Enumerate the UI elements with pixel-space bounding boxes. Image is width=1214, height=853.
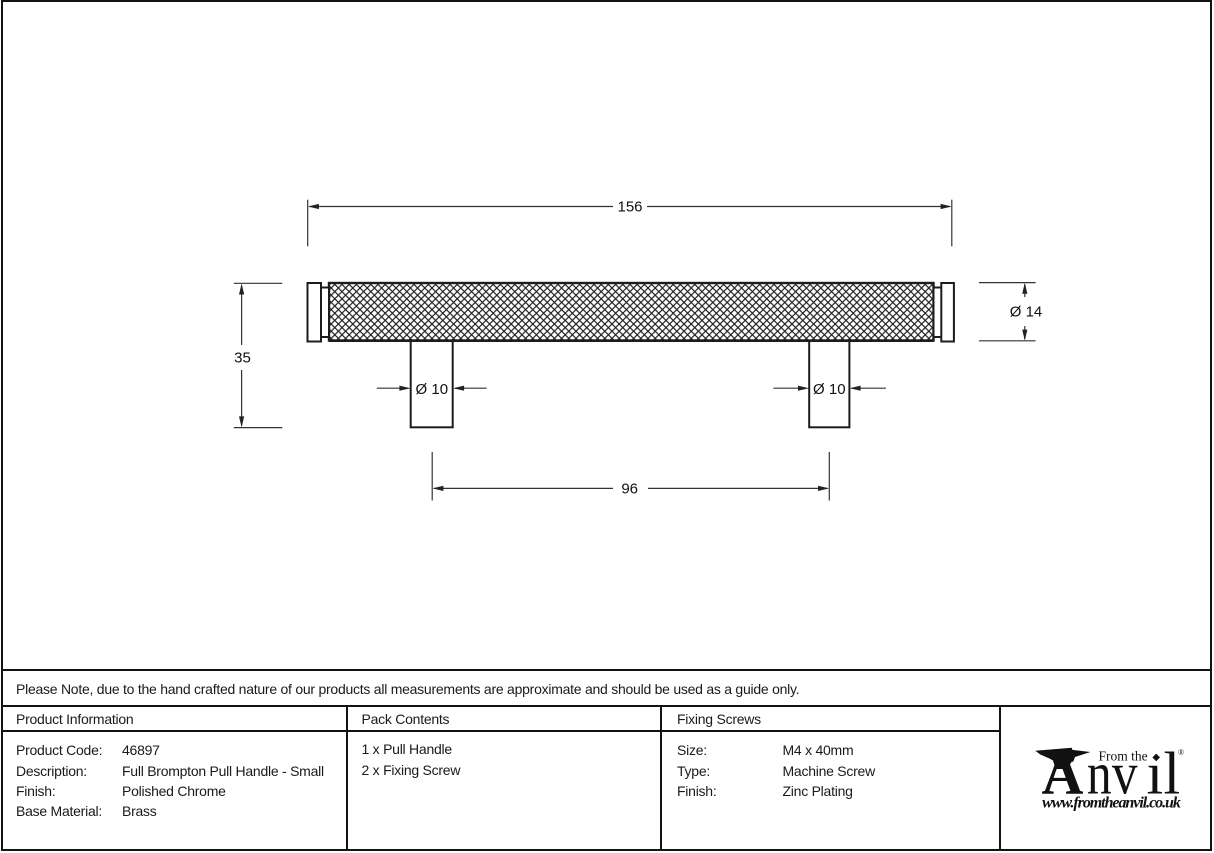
- svg-text:35: 35: [234, 350, 251, 367]
- svg-text:www.fromtheanvil.co.uk: www.fromtheanvil.co.uk: [1042, 795, 1181, 812]
- svg-text:96: 96: [621, 481, 638, 498]
- svg-text:Ø 10: Ø 10: [416, 381, 449, 398]
- svg-text:156: 156: [617, 199, 642, 216]
- svg-text:Ø 14: Ø 14: [1010, 304, 1043, 321]
- svg-text:Ø 10: Ø 10: [813, 381, 846, 398]
